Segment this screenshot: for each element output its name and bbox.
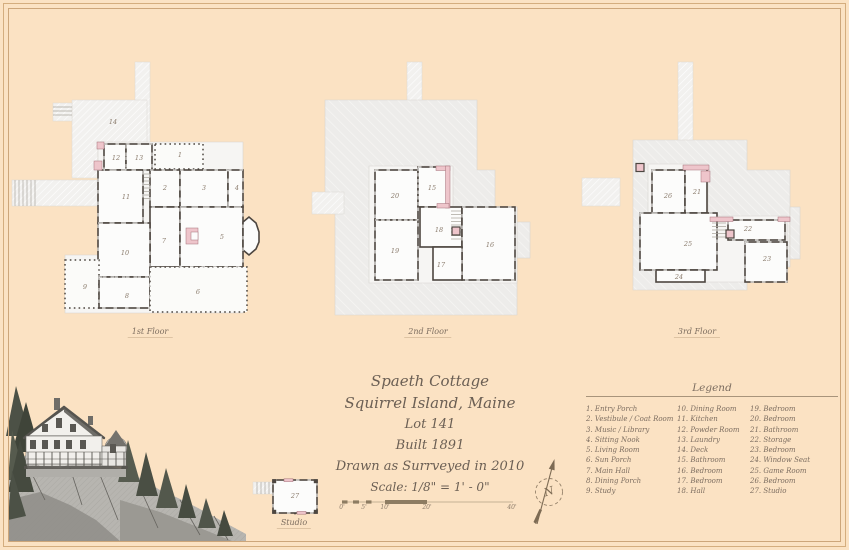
chimney	[683, 165, 709, 170]
room-number-23: 23	[763, 255, 771, 263]
room-number-3: 3	[202, 184, 206, 192]
built-year: Built 1891	[318, 435, 542, 456]
room-number-18: 18	[435, 226, 443, 234]
chimney	[710, 217, 733, 222]
cottage-illustration	[6, 386, 246, 541]
chimney	[284, 479, 293, 482]
room-number-13: 13	[135, 154, 143, 162]
room-number-25: 25	[684, 240, 692, 248]
room-number-17: 17	[437, 261, 445, 269]
chimney	[726, 230, 734, 238]
room-number-24: 24	[675, 273, 683, 281]
compass-letter: N	[541, 484, 555, 500]
floor-label-1: 1st Floor	[128, 327, 173, 338]
room-number-4: 4	[235, 184, 239, 192]
floor-label-4: Studio	[277, 518, 311, 529]
legend-item: 11. Kitchen	[677, 414, 750, 424]
legend-title: Legend	[586, 382, 838, 394]
legend-item: 10. Dining Room	[677, 404, 750, 414]
room-number-5: 5	[220, 233, 224, 241]
chimney	[437, 204, 449, 209]
legend: Legend 1. Entry Porch2. Vestibule / Coat…	[586, 382, 838, 497]
room-number-8: 8	[125, 292, 129, 300]
room-number-2: 2	[163, 184, 167, 192]
room-number-16: 16	[486, 241, 494, 249]
legend-rule	[586, 396, 838, 397]
cottage-name: Spaeth Cottage	[318, 371, 542, 393]
fireplace	[186, 228, 198, 244]
legend-item: 7. Main Hall	[586, 466, 677, 476]
legend-item: 5. Living Room	[586, 445, 677, 455]
legend-item: 4. Sitting Nook	[586, 435, 677, 445]
scale-note: Scale: 1/8" = 1' - 0"	[318, 477, 542, 497]
legend-item: 1. Entry Porch	[586, 404, 677, 414]
room-number-1: 1	[178, 151, 182, 159]
room-number-19: 19	[391, 247, 399, 255]
chimney	[778, 217, 790, 222]
chimney	[94, 161, 102, 170]
lot-number: Lot 141	[318, 414, 542, 435]
room-number-10: 10	[121, 249, 129, 257]
legend-item: 19. Bedroom	[750, 404, 838, 414]
survey-note: Drawn as Surrveyed in 2010	[318, 456, 542, 477]
room-number-26: 26	[664, 192, 672, 200]
room-number-22: 22	[744, 225, 752, 233]
floor-label-3: 3rd Floor	[674, 327, 720, 338]
room-number-9: 9	[83, 283, 87, 291]
legend-item: 21. Bathroom	[750, 425, 838, 435]
title-block: Spaeth Cottage Squirrel Island, Maine Lo…	[318, 371, 542, 497]
room-number-7: 7	[162, 237, 166, 245]
legend-item: 3. Music / Library	[586, 425, 677, 435]
legend-item: 18. Hall	[677, 486, 750, 496]
legend-item: 6. Sun Porch	[586, 455, 677, 465]
legend-item: 24. Window Seat	[750, 455, 838, 465]
room-number-27: 27	[291, 492, 299, 500]
legend-item: 20. Bedroom	[750, 414, 838, 424]
legend-column-3: 19. Bedroom20. Bedroom21. Bathroom22. St…	[750, 404, 838, 497]
scale-tick: 5'	[361, 504, 366, 511]
chimney	[97, 142, 104, 149]
scale-tick: 40'	[507, 504, 516, 511]
legend-item: 14. Deck	[677, 445, 750, 455]
legend-item: 13. Laundry	[677, 435, 750, 445]
legend-column-1: 1. Entry Porch2. Vestibule / Coat Room3.…	[586, 404, 677, 497]
room-number-14: 14	[109, 118, 117, 126]
legend-item: 9. Study	[586, 486, 677, 496]
room-number-21: 21	[693, 188, 701, 196]
legend-item: 15. Bathroom	[677, 455, 750, 465]
legend-item: 12. Powder Room	[677, 425, 750, 435]
room-number-6: 6	[196, 288, 200, 296]
plan-2nd-floor	[312, 62, 530, 315]
chimney	[701, 171, 710, 182]
legend-item: 22. Storage	[750, 435, 838, 445]
cottage-location: Squirrel Island, Maine	[318, 393, 542, 415]
chimney	[446, 166, 451, 208]
legend-item: 2. Vestibule / Coat Room	[586, 414, 677, 424]
scale-tick: 0'	[339, 504, 344, 511]
legend-item: 16. Bedroom	[677, 466, 750, 476]
scale-bar-labels: 0'5'10'20'40'	[0, 504, 849, 514]
scale-tick: 10'	[380, 504, 389, 511]
legend-column-2: 10. Dining Room11. Kitchen12. Powder Roo…	[677, 404, 750, 497]
blueprint-sheet: N 14121312341175109861st Floor2015181916…	[0, 0, 849, 550]
legend-item: 17. Bedroom	[677, 476, 750, 486]
scale-tick: 20'	[422, 504, 431, 511]
legend-columns: 1. Entry Porch2. Vestibule / Coat Room3.…	[586, 404, 838, 497]
legend-item: 27. Studio	[750, 486, 838, 496]
room-number-15: 15	[428, 184, 436, 192]
legend-item: 23. Bedroom	[750, 445, 838, 455]
legend-item: 25. Game Room	[750, 466, 838, 476]
legend-item: 26. Bedroom	[750, 476, 838, 486]
room-number-12: 12	[112, 154, 120, 162]
chimney	[636, 164, 644, 172]
chimney	[452, 227, 460, 235]
legend-item: 8. Dining Porch	[586, 476, 677, 486]
plan-1st-floor	[12, 62, 259, 313]
room-number-20: 20	[391, 192, 399, 200]
floor-label-2: 2nd Floor	[404, 327, 451, 338]
room-number-11: 11	[122, 193, 130, 201]
